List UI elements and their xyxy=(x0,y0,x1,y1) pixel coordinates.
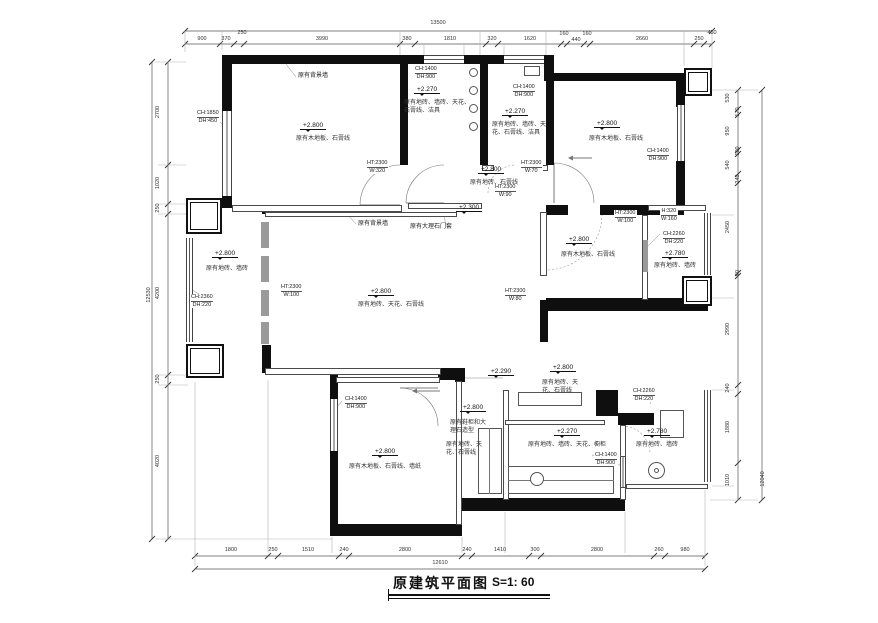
spec-line: H:320 xyxy=(661,208,677,216)
spec-line: CH:1850 xyxy=(197,110,219,118)
spec-line: DH:220 xyxy=(191,302,213,309)
spec-line: CH:1400 xyxy=(647,148,669,156)
spec-door-w100-living: HT:2300W:100 xyxy=(280,284,303,298)
spec-line: W:70 xyxy=(521,168,542,175)
dim-label: 370 xyxy=(214,36,238,42)
sliding-door-panel xyxy=(261,256,269,282)
dim-label: 4020 xyxy=(155,449,161,473)
finish-living: 原有地砖、天花、石膏线 xyxy=(346,302,436,310)
spec-line: CH:2260 xyxy=(633,388,655,396)
sliding-door-panel xyxy=(261,290,269,316)
finish-balcony-mr: 原有地砖、墙砖 xyxy=(650,263,700,271)
wall-segment xyxy=(676,161,685,207)
spec-win-bal-br: CH:2260DH:220 xyxy=(632,388,656,402)
level-mark-step-living: +2.300 xyxy=(456,204,482,212)
level-mark-balcony-mr: +2.780 xyxy=(662,250,688,258)
spec-line: W:160 xyxy=(661,216,677,223)
spec-line: W:320 xyxy=(367,168,388,175)
column xyxy=(684,68,712,96)
title-underline-thin xyxy=(388,598,550,599)
drawing-scale: S=1: 60 xyxy=(492,575,534,589)
partition-wall xyxy=(336,377,440,383)
spec-door-w90: HT:2300W:90 xyxy=(494,184,517,198)
bath-fixture-icon xyxy=(469,68,478,77)
level-mark-kitchen: +2.270 xyxy=(554,428,580,436)
dim-label: 260 xyxy=(647,547,671,553)
spec-line: DH:900 xyxy=(415,74,437,81)
window-bedroom-bl xyxy=(330,399,338,451)
spec-line: DH:900 xyxy=(513,92,535,99)
sink-icon xyxy=(530,472,544,486)
dim-total-bottom: 12610 xyxy=(428,560,452,566)
dim-label: 240 xyxy=(332,547,356,553)
dim-label: 2990 xyxy=(725,317,731,341)
dim-label: 240 xyxy=(735,167,741,191)
wall-segment xyxy=(330,524,462,536)
window-balcony-br xyxy=(704,390,711,482)
shoe-cabinet xyxy=(478,428,502,494)
bath-fixture-icon xyxy=(469,86,478,95)
dim-label: 2800 xyxy=(393,547,417,553)
partition-wall xyxy=(540,212,547,276)
dim-label: 900 xyxy=(190,36,214,42)
sliding-door-panel xyxy=(261,322,269,344)
level-mark-dining: +2.800 xyxy=(550,364,576,372)
dim-label: 2800 xyxy=(585,547,609,553)
wall-segment xyxy=(540,300,548,342)
wall-segment xyxy=(455,368,465,382)
column xyxy=(186,198,222,234)
shoe-cabinet-line xyxy=(489,428,490,494)
dim-label: 950 xyxy=(725,119,731,143)
dim-label: 160 xyxy=(558,31,570,37)
spec-line: W:100 xyxy=(281,292,302,299)
level-mark-bath-a: +2.270 xyxy=(414,86,440,94)
dim-label: 2450 xyxy=(725,215,731,239)
spec-door-w70: HT:2300W:70 xyxy=(520,160,543,174)
spec-line: CH:2260 xyxy=(663,231,685,239)
spec-win-bed-tr: CH:1400DH:900 xyxy=(646,148,670,162)
level-mark-bedroom-bl: +2.800 xyxy=(372,448,398,456)
dim-label: 1800 xyxy=(219,547,243,553)
spec-win-master: CH:1850DH:450 xyxy=(196,110,220,124)
partition-wall xyxy=(626,484,708,489)
level-mark-bedroom-tl: +2.800 xyxy=(300,122,326,130)
dim-label: 320 xyxy=(480,36,504,42)
spec-door-bed-tl: HT:2300W:320 xyxy=(366,160,389,174)
sliding-window-panel xyxy=(643,240,648,272)
finish-bedroom-bl: 原有木地板、石膏线、墙纸 xyxy=(330,464,440,472)
spec-line: HT:2300 xyxy=(521,160,542,168)
dim-label: 380 xyxy=(395,36,419,42)
level-mark-balcony-br: +2.780 xyxy=(644,428,670,436)
window-bath-a xyxy=(424,55,464,64)
dim-label: 90 xyxy=(735,261,741,285)
dim-label: 300 xyxy=(523,547,547,553)
spec-line: CH:1400 xyxy=(513,84,535,92)
annotation-bg-wall-top: 原有背景墙 xyxy=(298,73,328,80)
dim-label: 530 xyxy=(725,86,731,110)
finish-entry-b: 原有地砖、天花、石膏线 xyxy=(446,442,482,457)
spec-line: HT:2300 xyxy=(505,288,526,296)
level-mark-bedroom-tr: +2.800 xyxy=(594,120,620,128)
finish-kitchen: 原有地砖、墙砖、天花、橱柜 xyxy=(524,442,610,450)
dim-label: 250 xyxy=(155,367,161,391)
dim-label: 1510 xyxy=(296,547,320,553)
wall-segment xyxy=(546,205,568,215)
dim-label: 1020 xyxy=(155,171,161,195)
dim-label: 160 xyxy=(581,31,593,37)
dim-label: 1620 xyxy=(518,36,542,42)
spec-line: W:90 xyxy=(495,192,516,199)
partition-wall xyxy=(265,368,441,375)
dim-label: 440 xyxy=(570,37,582,43)
wall-segment xyxy=(596,390,618,416)
finish-bedroom-tr: 原有木地板、石膏线 xyxy=(578,136,654,144)
dim-label: 1810 xyxy=(438,36,462,42)
spec-line: HT:2300 xyxy=(281,284,302,292)
dim-label: 170 xyxy=(735,100,741,124)
window-master-left xyxy=(222,111,232,196)
annotation-bg-wall-living: 原有背景墙 xyxy=(358,221,388,228)
dim-label: 250 xyxy=(230,30,254,36)
finish-bedroom-mr: 原有木地板、石膏线 xyxy=(548,252,628,260)
dim-label: 1880 xyxy=(725,415,731,439)
finish-bath-a: 原有地砖、墙砖、天花、石膏线、洁具 xyxy=(404,100,472,115)
wall-segment xyxy=(618,413,654,425)
spec-line: HT:2300 xyxy=(495,184,516,192)
dim-total-right: 12040 xyxy=(760,464,766,494)
level-mark-step-dining: +2.290 xyxy=(488,368,514,376)
level-mark-entry: +2.800 xyxy=(460,404,486,412)
wall-segment xyxy=(460,498,625,511)
spec-line: CH:1400 xyxy=(345,396,367,404)
spec-niche: H:320W:160 xyxy=(660,208,678,222)
partition-wall xyxy=(505,420,605,425)
partition-wall xyxy=(265,212,457,217)
dim-total-top: 13500 xyxy=(426,20,450,26)
drawing-title: 原建筑平面图 xyxy=(393,573,489,593)
sliding-door-panel xyxy=(261,222,269,248)
partition-wall xyxy=(620,425,626,457)
spec-line: DH:900 xyxy=(647,156,669,163)
spec-line: CH:1400 xyxy=(595,452,617,460)
dim-label: 2660 xyxy=(630,36,654,42)
spec-line: W:80 xyxy=(505,296,526,303)
spec-win-bal-mr: CH:2260DH:220 xyxy=(662,231,686,245)
wall-segment xyxy=(222,196,232,208)
dim-label: 540 xyxy=(725,153,731,177)
partition-wall xyxy=(232,205,402,212)
dim-label: 450 xyxy=(700,30,724,36)
level-mark-bath-b: +2.270 xyxy=(502,108,528,116)
wall-segment xyxy=(546,73,684,81)
title-underline-tick xyxy=(388,589,389,601)
spec-line: DH:900 xyxy=(595,460,617,467)
spec-line: CH:2360 xyxy=(191,294,213,302)
kitchen-counter-line xyxy=(508,480,614,481)
column xyxy=(682,276,712,306)
spec-line: HT:2300 xyxy=(615,210,636,218)
level-mark-balcony-left: +2.800 xyxy=(212,250,238,258)
wall-segment xyxy=(480,63,488,165)
bath-fixture-icon xyxy=(469,122,478,131)
dim-total-left: 12530 xyxy=(146,280,152,310)
column xyxy=(186,344,224,378)
spec-door-w100-mr: HT:2300W:100 xyxy=(614,210,637,224)
window-bedroom-tr xyxy=(677,105,685,161)
spec-win-bal-left: CH:2360DH:220 xyxy=(190,294,214,308)
dim-label: 240 xyxy=(455,547,479,553)
dim-label: 240 xyxy=(725,376,731,400)
spec-door-w80: HT:2300W:80 xyxy=(504,288,527,302)
wall-segment xyxy=(222,55,232,111)
spec-win-bath-a: CH:1400DH:900 xyxy=(414,66,438,80)
dim-label: 250 xyxy=(155,196,161,220)
level-mark-living: +2.800 xyxy=(368,288,394,296)
dim-label: 980 xyxy=(673,547,697,553)
spec-win-bed-bl: CH:1400DH:900 xyxy=(344,396,368,410)
spec-win-kitchen: CH:1400DH:900 xyxy=(594,452,618,466)
dim-label: 3990 xyxy=(310,36,334,42)
spec-line: DH:220 xyxy=(663,239,685,246)
toilet-icon xyxy=(524,66,540,76)
finish-balcony-br: 原有地砖、墙砖 xyxy=(632,442,682,450)
dim-label: 1010 xyxy=(725,468,731,492)
spec-line: HT:2300 xyxy=(367,160,388,168)
finish-bath-b: 原有地砖、墙砖、天花、石膏线、洁具 xyxy=(492,122,554,137)
dim-label: 250 xyxy=(687,36,711,42)
level-mark-bedroom-mr: +2.800 xyxy=(566,236,592,244)
finish-balcony-left: 原有地砖、墙砖 xyxy=(202,266,252,274)
finish-bedroom-tl: 原有木地板、石膏线 xyxy=(278,136,368,144)
spec-line: DH:220 xyxy=(633,396,655,403)
finish-dining: 原有地砖、天花、石膏线 xyxy=(542,380,578,395)
level-mark-hallway: +2.800 xyxy=(478,166,504,174)
floor-plan: 13500 900 370 250 3990 380 1810 320 1620… xyxy=(0,0,878,623)
dim-label: 4200 xyxy=(155,281,161,305)
spec-line: DH:900 xyxy=(345,404,367,411)
window-balcony-mr xyxy=(704,213,711,275)
window-bath-b xyxy=(504,55,544,64)
dim-label: 250 xyxy=(261,547,285,553)
dim-label: 100 xyxy=(735,139,741,163)
title-underline-thick xyxy=(388,594,550,596)
spec-line: W:100 xyxy=(615,218,636,225)
spec-line: CH:1400 xyxy=(415,66,437,74)
spec-win-bath-b: CH:1400DH:900 xyxy=(512,84,536,98)
washing-machine-center-icon xyxy=(654,468,659,473)
window-balcony-left xyxy=(186,238,193,342)
window-kitchen xyxy=(620,457,626,487)
finish-entry-a: 原有鞋柜和大理石造型 xyxy=(450,420,486,435)
dim-label: 2700 xyxy=(155,100,161,124)
dim-label: 1410 xyxy=(488,547,512,553)
annotation-marble-door-frame: 原有大理石门套 xyxy=(410,224,452,231)
spec-line: DH:450 xyxy=(197,118,219,125)
wall-segment xyxy=(222,55,424,64)
